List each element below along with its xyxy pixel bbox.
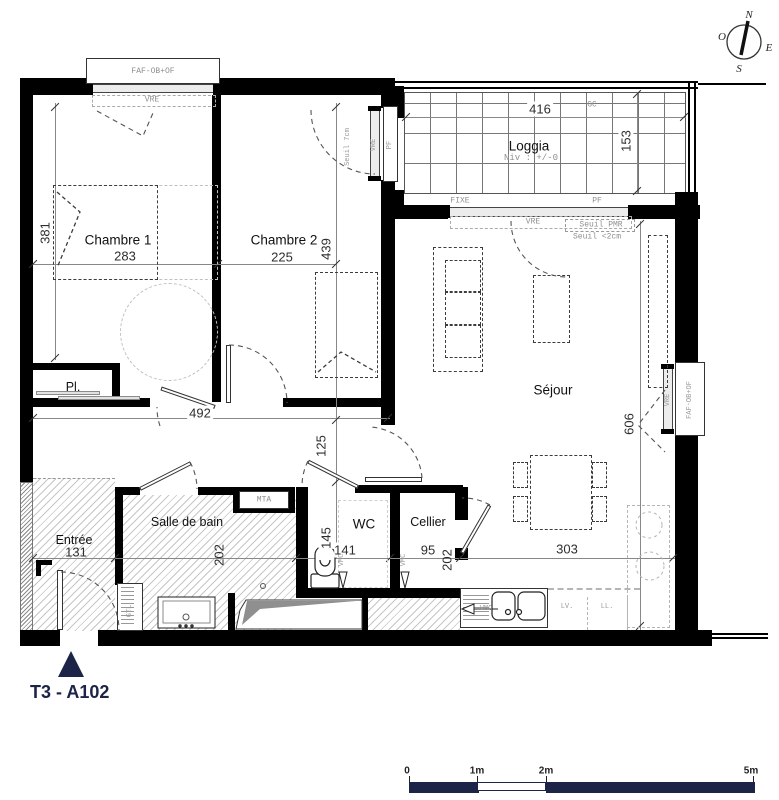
dim-sejour-height: 606	[622, 411, 637, 437]
loggia-railing	[688, 81, 690, 199]
scale-tick-5m: 5m	[744, 766, 758, 777]
door-arc-loggia-chambre2	[311, 110, 375, 174]
scale-tick-0: 0	[404, 766, 410, 777]
compass-rose	[727, 21, 761, 59]
coffee-table	[533, 275, 570, 343]
tv-unit	[648, 235, 668, 388]
gc-label: GC	[587, 101, 597, 110]
dim-cellier-height: 202	[440, 549, 455, 571]
dim-hall-width: 492	[187, 406, 213, 421]
entry-door-leaf	[57, 570, 63, 630]
wall-sdb-top	[198, 487, 233, 495]
wall-top	[218, 78, 395, 95]
faf-label-right: FAF-OB+OF	[686, 381, 694, 419]
window-type-label: FAF-OB+OF	[131, 67, 174, 76]
vre-label-top: VRE	[145, 96, 159, 105]
vre-label-right: VRE	[664, 394, 672, 407]
fixe-label: FIXE	[450, 197, 469, 206]
door-arc-chambre2	[229, 345, 287, 403]
exterior-line	[712, 637, 768, 639]
exterior-line	[698, 83, 766, 85]
pf-label-mid: PF	[592, 197, 602, 206]
wall-wc-bottom	[296, 588, 467, 598]
dim-loggia-depth: 153	[619, 128, 634, 154]
wall-sdb-top	[123, 487, 140, 495]
kitchen-counter-edge	[548, 588, 640, 590]
wall-right	[675, 432, 698, 646]
room-label-sdb: Salle de bain	[151, 515, 223, 529]
loggia-level-label: Niv : +/-0	[504, 153, 558, 163]
vmc-label-wc: VMC	[338, 554, 346, 567]
wall-chambre2-right	[381, 180, 395, 425]
lv-label: LV.	[561, 603, 574, 611]
chambre2-door-leaf	[226, 345, 231, 403]
vre-label-ch2: VRE	[370, 139, 378, 152]
scale-bar-segment-2-5	[546, 782, 755, 793]
compass-needle	[741, 21, 748, 55]
exterior-line	[712, 633, 768, 635]
unit-label: T3 - A102	[30, 682, 109, 703]
vmc-label-cellier: VMC	[400, 554, 408, 567]
dining-chair	[592, 496, 607, 522]
dim-sejour-width: 303	[556, 542, 578, 557]
dim-cellier-width: 95	[421, 543, 435, 558]
wall-bath-edge	[362, 593, 368, 630]
wall-left	[20, 78, 33, 488]
seuil-pmr-label: Seuil PMR	[579, 221, 622, 230]
wall-wc-cellier	[390, 490, 400, 590]
placard-wall	[30, 363, 120, 370]
door-stop	[36, 560, 41, 576]
pf-label-ch2: PF	[386, 141, 394, 149]
loggia-railing	[393, 81, 698, 83]
wall-left-shared	[20, 482, 33, 632]
wall-sdb-left	[115, 487, 123, 585]
kitchen-divider	[627, 597, 628, 630]
bed-chambre2	[315, 272, 378, 378]
dim-wc-depth: 145	[319, 527, 334, 549]
door-arc-sdb	[190, 462, 197, 489]
entrance-marker-triangle	[58, 651, 84, 677]
door-arc-loggia-sejour	[511, 221, 567, 277]
seuil7-label: Seuil 7cm	[344, 128, 352, 166]
room-label-wc: WC	[353, 517, 376, 532]
sofa-cushion	[445, 292, 481, 325]
sdb-door-leaf	[139, 461, 192, 490]
room-label-loggia: Loggia	[509, 139, 550, 154]
kitchen-divider	[587, 597, 588, 630]
dim-line	[404, 117, 686, 118]
wall-bottom	[98, 630, 712, 646]
dim-sdb-height: 202	[212, 544, 227, 566]
door-arc-sejour	[370, 427, 422, 478]
window-tag-box: FAF-OB+OF	[86, 58, 220, 84]
wall-sdb-wc	[296, 487, 308, 590]
compass-n: N	[745, 9, 752, 21]
mta-label: MTA	[257, 496, 271, 505]
window-cap	[368, 176, 381, 181]
placard-sliding-door	[58, 396, 140, 400]
sofa-cushion	[445, 325, 481, 358]
room-label-sejour: Séjour	[533, 383, 572, 398]
kitchen-tall-unit	[627, 505, 670, 628]
ll-label: LL.	[601, 603, 614, 611]
compass-s: S	[736, 63, 742, 75]
room-label-chambre1: Chambre 1	[85, 233, 152, 248]
wall-chambre2-right	[381, 78, 395, 108]
dim-chambre1-height: 381	[38, 222, 53, 244]
dim-chambre1-width: 283	[114, 249, 136, 264]
sejour-door-leaf	[365, 477, 422, 482]
vmc-label-kitchen: VMC	[480, 605, 493, 613]
floor-plan: FAF-OB+OF	[0, 0, 779, 800]
door-arc-chambre1	[157, 407, 160, 426]
window-cap	[368, 106, 381, 111]
window-cap	[661, 429, 674, 434]
dim-loggia-width: 416	[527, 102, 553, 117]
dining-chair	[513, 462, 528, 488]
wall-wc-top	[355, 485, 463, 493]
window-swing-chambre1	[97, 111, 153, 136]
dim-chambre2-width: 225	[271, 250, 293, 265]
seuil-2cm-label: Seuil <2cm	[573, 233, 621, 242]
wall-hallway-north	[283, 398, 392, 407]
scale-bar-segment-0-1	[409, 782, 479, 793]
window-swing-sejour	[638, 390, 665, 452]
loggia-pillar	[675, 192, 698, 219]
window-chambre1	[90, 84, 216, 93]
sofa-cushion	[445, 260, 481, 292]
compass-e: E	[766, 42, 773, 54]
vre-label-mid: VRE	[526, 218, 540, 227]
scale-tick-2m: 2m	[539, 766, 553, 777]
dining-table	[530, 455, 592, 530]
door-arc-wc	[302, 461, 308, 487]
dim-chambre2-height: 439	[319, 238, 334, 260]
wall-bottom	[20, 630, 60, 646]
loggia-railing	[694, 81, 696, 199]
dining-chair	[592, 462, 607, 488]
scale-tick-1m: 1m	[470, 766, 484, 777]
turning-circle	[120, 283, 218, 381]
compass-w: O	[718, 31, 726, 43]
gtl-label: GTL	[126, 605, 134, 618]
room-label-placard: Pl.	[66, 380, 81, 394]
loggia-railing	[393, 87, 698, 89]
wall-right	[675, 205, 698, 367]
scale-bar-segment-1-2	[477, 782, 546, 791]
dining-chair	[513, 496, 528, 522]
wall-cellier-right	[455, 487, 468, 520]
dim-hall-depth: 125	[314, 434, 329, 458]
wall-bath-edge	[228, 593, 235, 630]
room-label-chambre2: Chambre 2	[251, 233, 318, 248]
dim-line	[637, 92, 638, 193]
room-label-cellier: Cellier	[410, 515, 445, 529]
dim-entree-width: 131	[65, 545, 87, 560]
